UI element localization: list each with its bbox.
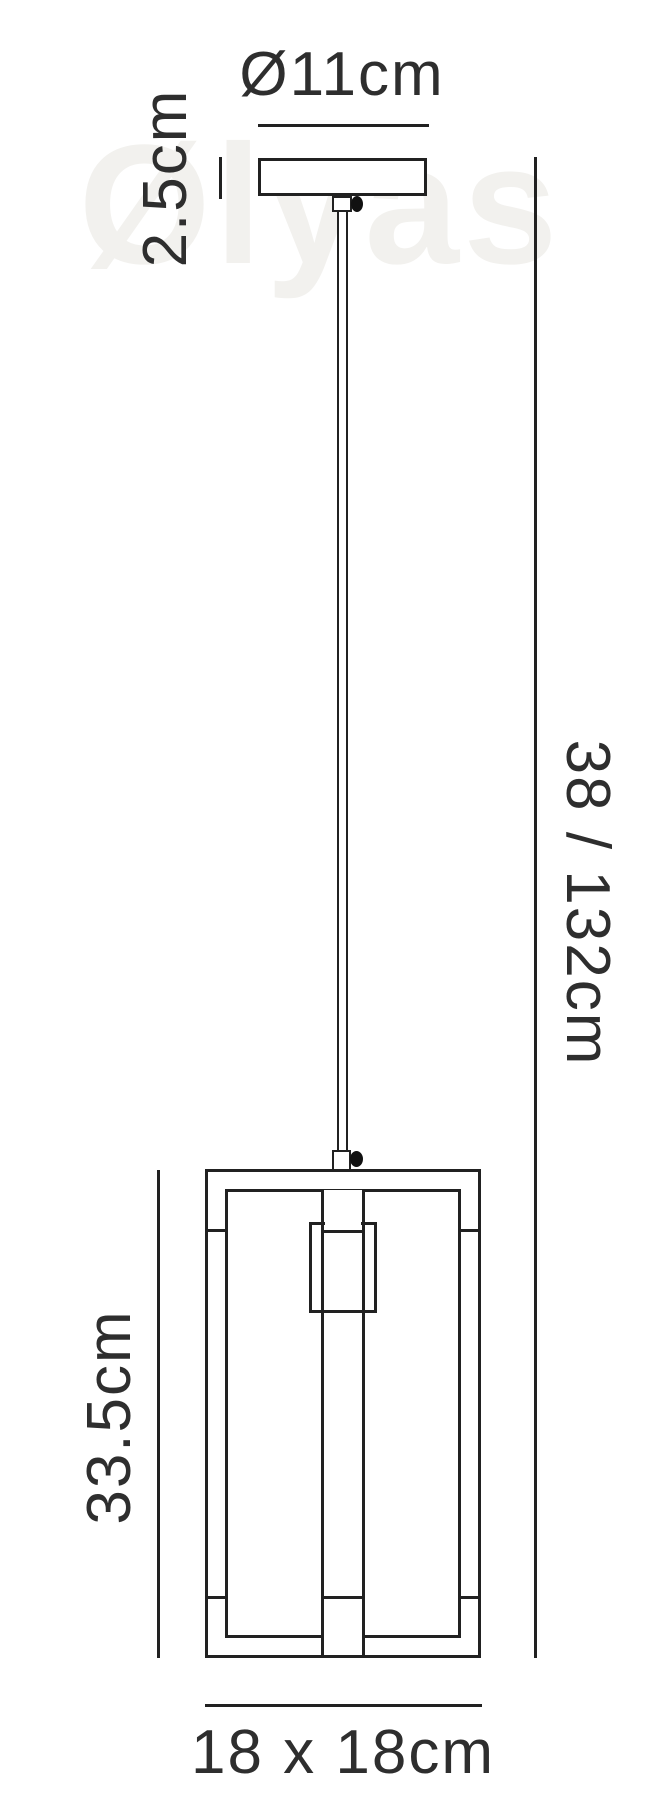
dimension-diagram: Ølyas Ø11cm 2.5cm 38 / 132cm 33.5cm 18 x… <box>0 0 656 1800</box>
frame-joint-bottom-right <box>458 1596 481 1599</box>
rod-connector-top <box>332 196 352 212</box>
dim-line-canopy-height <box>219 157 222 199</box>
knob-bottom-icon <box>350 1151 363 1167</box>
frame-joint-top-left <box>205 1229 228 1232</box>
suspension-rod <box>337 211 348 1151</box>
dim-line-body-height <box>157 1170 160 1658</box>
drop-height-label: 38 / 132cm <box>556 740 618 1067</box>
frame-joint-bottom-left <box>205 1596 228 1599</box>
rod-connector-bottom <box>332 1150 351 1171</box>
dim-line-canopy-diameter <box>258 124 429 127</box>
canopy-height-label: 2.5cm <box>135 89 197 268</box>
knob-top-icon <box>351 196 363 212</box>
frame-joint-top-right <box>458 1229 481 1232</box>
base-size-label: 18 x 18cm <box>191 1722 495 1784</box>
ceiling-plate <box>258 158 427 196</box>
lantern-outer-frame <box>205 1169 481 1658</box>
dim-line-base-size <box>205 1704 482 1707</box>
canopy-diameter-label: Ø11cm <box>239 44 444 106</box>
dim-line-drop-height <box>534 157 537 1658</box>
body-height-label: 33.5cm <box>79 1309 141 1524</box>
